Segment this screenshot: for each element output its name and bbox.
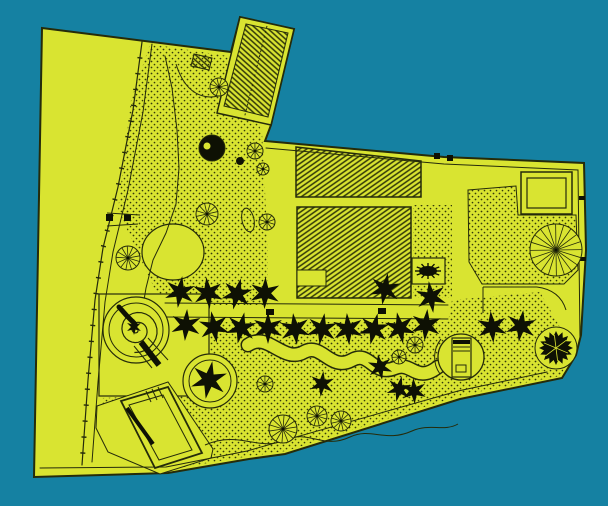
small-shrub-dark — [236, 157, 244, 165]
tree-trunk — [414, 344, 417, 347]
plan-canvas — [0, 0, 608, 506]
tree-trunk — [340, 420, 343, 423]
fence-gate-post-a — [106, 214, 113, 221]
row-path-gate-b — [378, 308, 386, 314]
tree-trunk — [316, 415, 319, 418]
tree-trunk — [206, 213, 209, 216]
tree-trunk — [262, 168, 265, 171]
boundary-fence-ticks-tick — [131, 105, 136, 106]
north-gate-post-b — [447, 155, 453, 161]
lawn-circle — [142, 224, 204, 280]
tree-trunk — [264, 383, 267, 386]
tree-trunk — [266, 221, 269, 224]
boundary-fence-ticks-tick — [119, 168, 124, 169]
boundary-fence-ticks-tick — [122, 152, 127, 153]
fence-gate-post-b — [124, 214, 131, 221]
tree-trunk — [398, 356, 401, 359]
building-south-porch — [297, 270, 326, 286]
boundary-fence-ticks-tick — [135, 73, 140, 74]
north-gate-post-a — [434, 153, 440, 159]
dark-round-tree-highlight — [204, 143, 211, 150]
large-tree-east-trunk — [555, 249, 558, 252]
tree-trunk — [282, 428, 285, 431]
boundary-fence-ticks-tick — [98, 262, 103, 263]
game-table-head — [453, 340, 470, 344]
dark-round-tree — [199, 135, 225, 161]
east-fence-tick-a — [579, 196, 585, 200]
site-plan-svg — [0, 0, 608, 506]
boundary-fence-ticks-tick — [128, 121, 133, 122]
seating-table-symbol-top — [419, 266, 437, 276]
row-path-gate-a — [266, 309, 274, 315]
tree-trunk — [127, 257, 130, 260]
spiral-mound-outer — [103, 297, 169, 363]
boundary-fence-ticks-tick — [137, 58, 142, 59]
boundary-fence-ticks-tick — [133, 89, 138, 90]
boundary-fence-ticks-tick — [116, 184, 121, 185]
tree-trunk — [254, 150, 257, 153]
boundary-fence-ticks-tick — [94, 293, 99, 294]
boundary-fence-ticks-tick — [96, 277, 101, 278]
boundary-fence-ticks-tick — [125, 136, 130, 137]
tree-trunk — [218, 86, 221, 89]
